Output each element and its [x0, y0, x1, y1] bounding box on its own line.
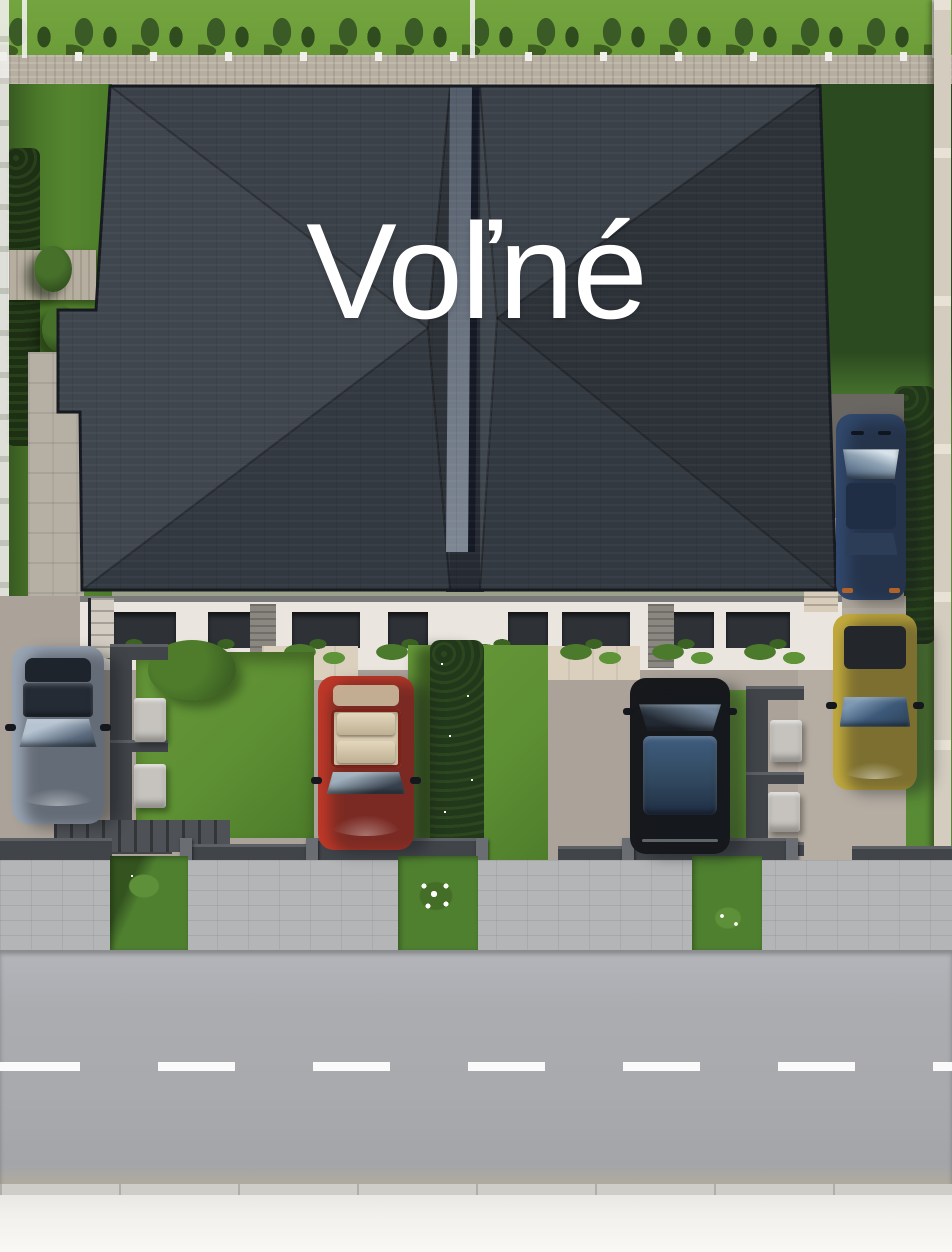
car-seats — [337, 713, 395, 735]
car-hood-highlight — [843, 762, 907, 780]
car-hood-highlight — [21, 788, 95, 806]
car-windshield — [840, 697, 911, 727]
black-car — [630, 678, 730, 854]
gold-car — [833, 614, 917, 790]
car-windshield — [19, 719, 96, 747]
car-rear-window — [25, 658, 91, 681]
duplex-hip-roof — [0, 0, 952, 1252]
car-mirror — [410, 777, 421, 784]
silver-car — [12, 646, 104, 824]
car-windshield — [639, 704, 721, 730]
car-windshield — [327, 772, 406, 795]
aerial-property-scene: Voľné — [0, 0, 952, 1252]
car-roof — [23, 683, 93, 717]
car-mirror — [623, 708, 634, 715]
hood-vent — [878, 431, 891, 435]
car-mirror — [826, 702, 837, 709]
car-rear-window — [844, 533, 897, 555]
red-convertible — [318, 676, 414, 850]
car-mirror — [726, 708, 737, 715]
car-windshield — [843, 449, 899, 479]
car-mirror — [5, 724, 16, 731]
availability-label[interactable]: Voľné — [288, 203, 664, 339]
car-taillight — [842, 588, 853, 593]
car-mirror — [913, 702, 924, 709]
car-mirror — [100, 724, 111, 731]
blue-car — [836, 414, 906, 600]
open-cabin — [331, 709, 400, 768]
car-hood-highlight — [330, 815, 403, 836]
panoramic-glass-roof — [643, 736, 717, 815]
folded-roof-cover — [333, 685, 398, 706]
car-taillight — [889, 588, 900, 593]
car-seats — [337, 741, 395, 763]
car-mirror — [311, 777, 322, 784]
hood-vent — [851, 431, 864, 435]
car-roof — [846, 483, 896, 530]
car-trunk-line — [642, 839, 718, 842]
car-roof — [844, 626, 906, 668]
